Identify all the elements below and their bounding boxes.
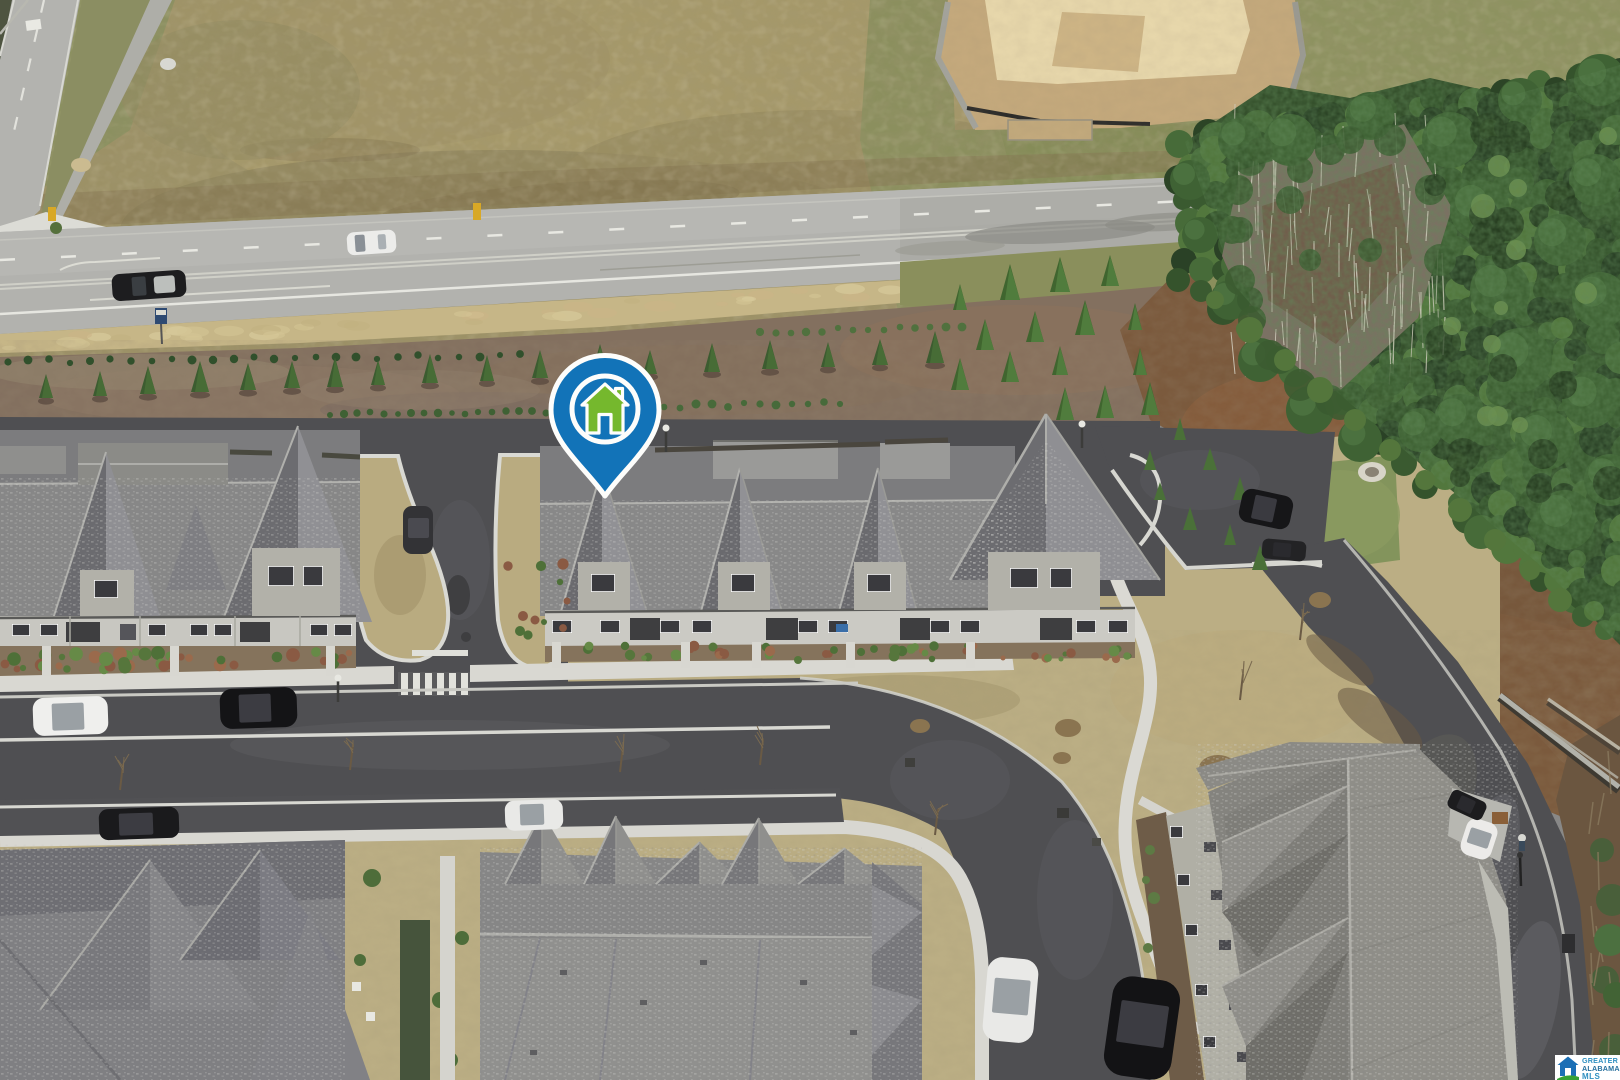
svg-text:MLS: MLS (1582, 1072, 1601, 1080)
